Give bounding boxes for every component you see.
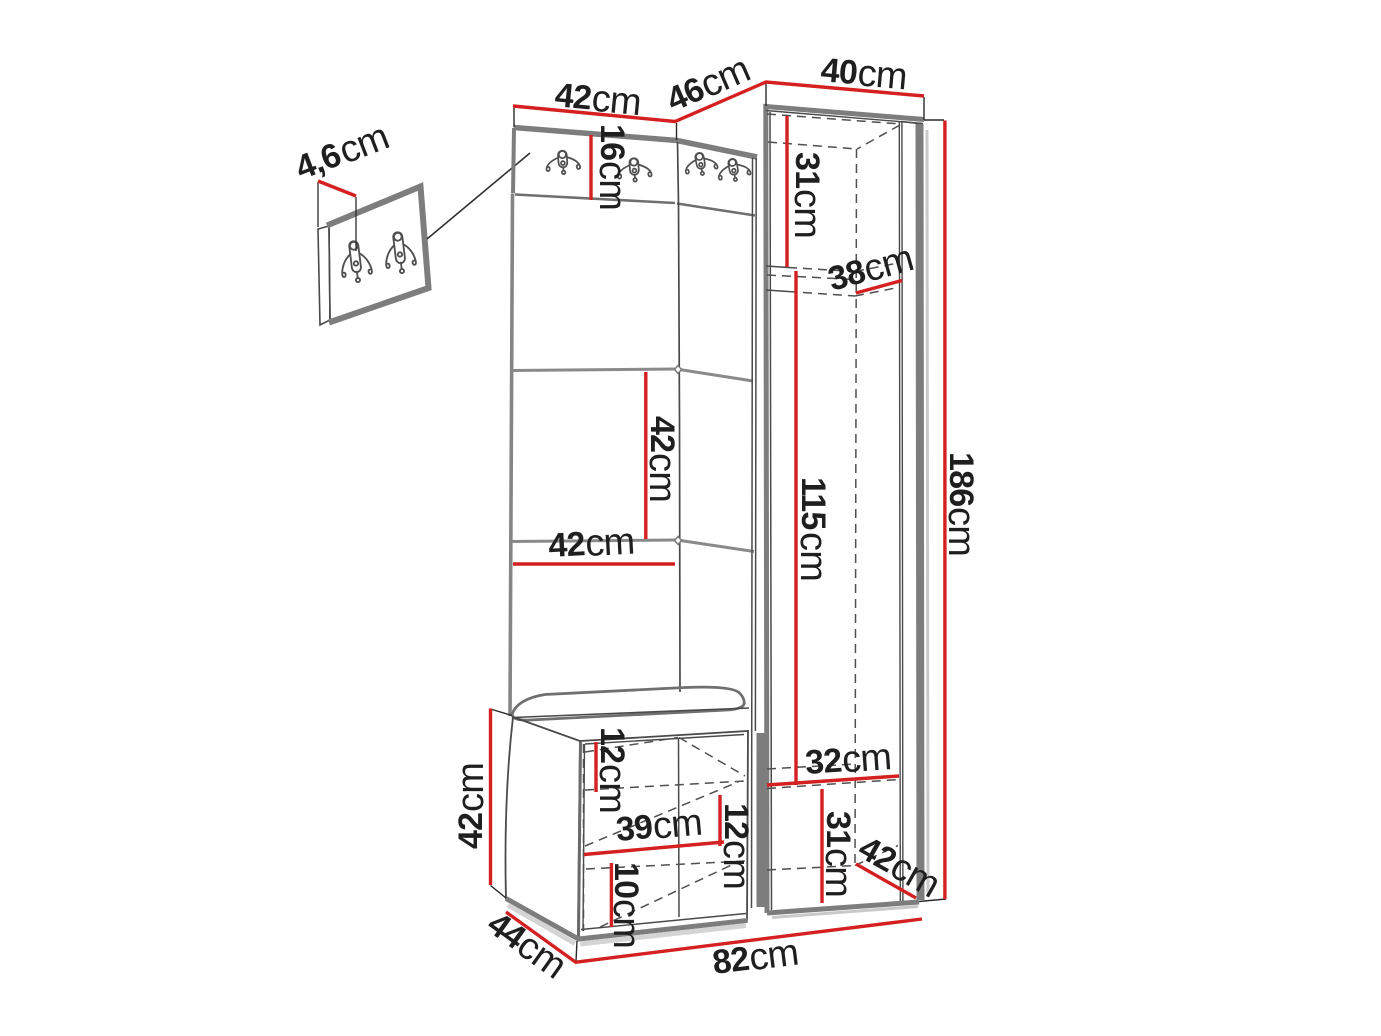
- svg-text:186: 186: [942, 452, 980, 506]
- svg-text:cm: cm: [584, 521, 635, 566]
- svg-text:cm: cm: [715, 840, 757, 889]
- svg-text:cm: cm: [590, 78, 643, 125]
- svg-text:40: 40: [819, 51, 858, 92]
- svg-text:32: 32: [804, 742, 843, 782]
- svg-text:cm: cm: [786, 189, 828, 238]
- svg-text:31: 31: [788, 152, 826, 188]
- svg-text:115: 115: [794, 477, 832, 529]
- svg-text:39: 39: [614, 808, 653, 849]
- svg-text:42: 42: [452, 813, 490, 849]
- svg-text:cm: cm: [940, 507, 982, 556]
- svg-text:31: 31: [819, 811, 857, 847]
- svg-text:12: 12: [593, 727, 631, 763]
- svg-text:10: 10: [607, 862, 645, 898]
- svg-text:cm: cm: [792, 532, 834, 581]
- svg-text:82: 82: [710, 940, 751, 982]
- svg-text:cm: cm: [591, 161, 633, 210]
- svg-text:42: 42: [643, 416, 681, 452]
- svg-text:12: 12: [717, 803, 755, 839]
- svg-text:42: 42: [547, 525, 585, 565]
- svg-text:cm: cm: [747, 932, 801, 980]
- svg-text:cm: cm: [591, 764, 633, 813]
- svg-text:cm: cm: [856, 52, 909, 98]
- svg-text:cm: cm: [605, 899, 647, 948]
- svg-text:cm: cm: [841, 736, 893, 781]
- svg-text:cm: cm: [651, 802, 704, 848]
- svg-text:16: 16: [593, 124, 631, 160]
- svg-text:cm: cm: [450, 763, 492, 812]
- svg-text:cm: cm: [641, 453, 683, 502]
- svg-text:42: 42: [553, 76, 593, 117]
- svg-text:cm: cm: [817, 848, 859, 897]
